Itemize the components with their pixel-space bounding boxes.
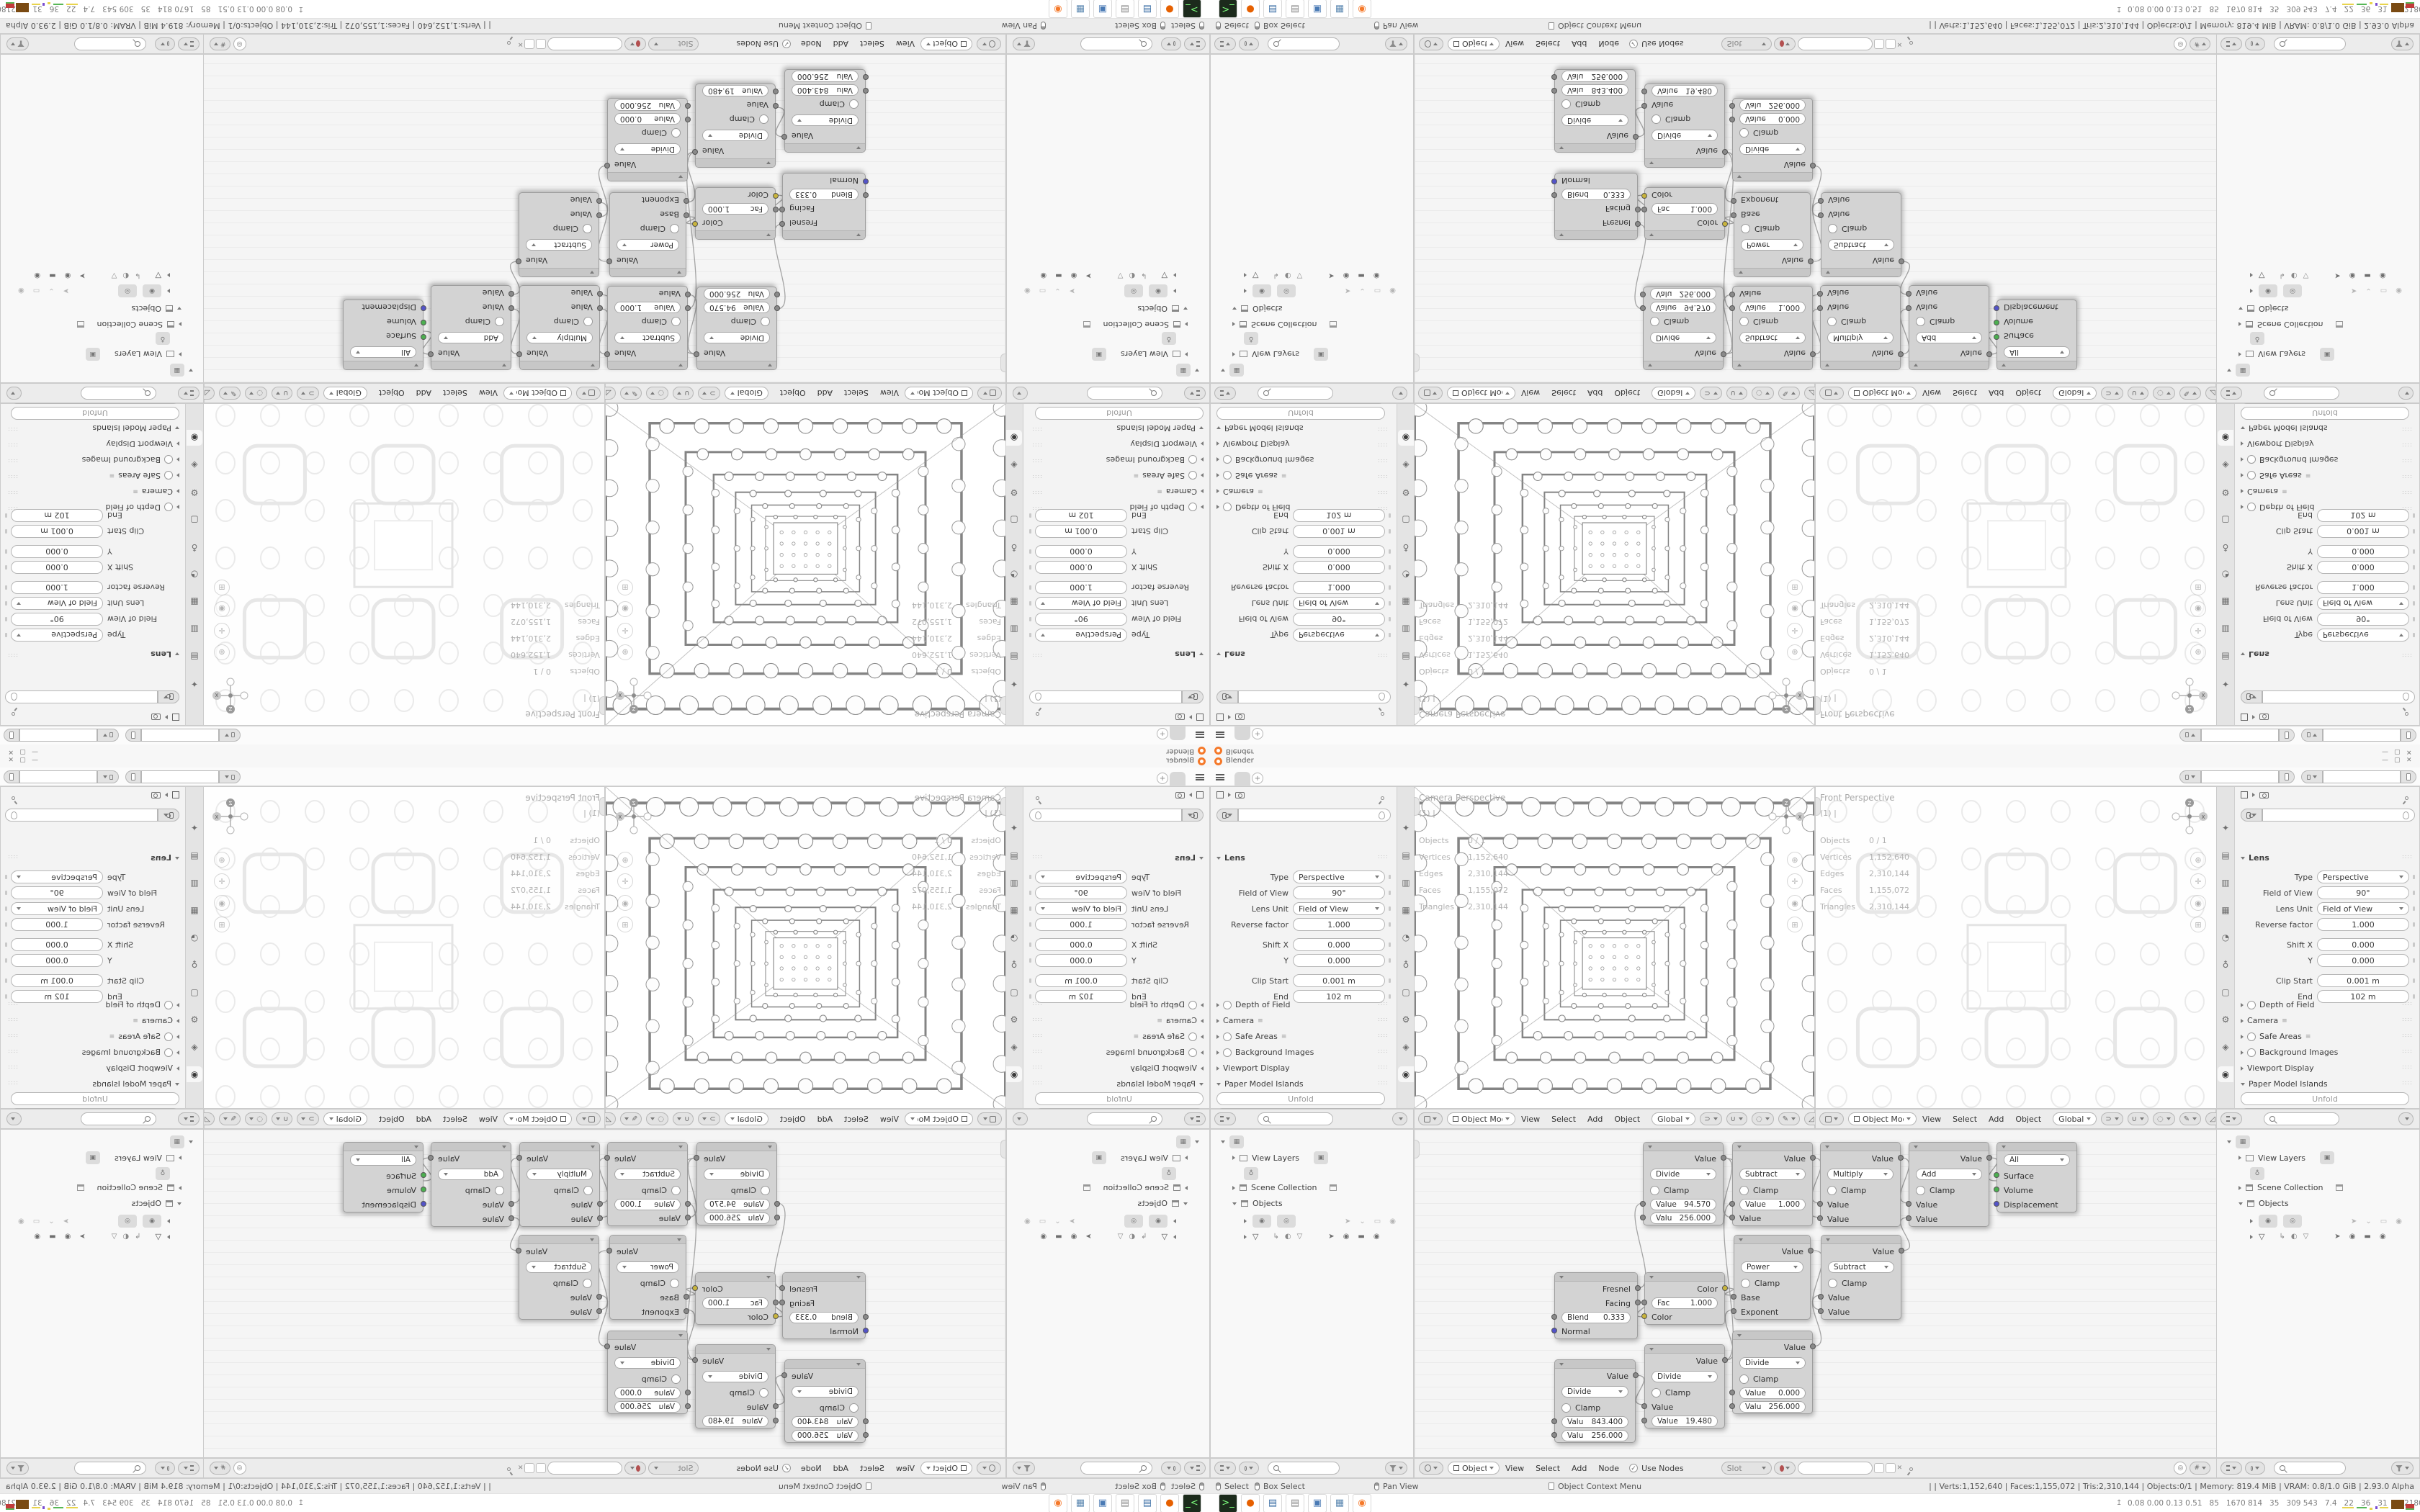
mode-dropdown[interactable]: Object Mode (1848, 1112, 1917, 1125)
node-header[interactable] (785, 1360, 865, 1369)
chevron-icon[interactable]: ⌄ (2365, 287, 2371, 295)
output-socket[interactable] (779, 1300, 785, 1305)
proportional-edit-group[interactable]: ◌ (1752, 1112, 1774, 1125)
panel-section-depth-of-field[interactable]: Depth of Field (2241, 503, 2315, 512)
lens-row-value-field-of-view[interactable]: 90° (11, 613, 103, 626)
chevron-icon[interactable]: ⌄ (1359, 287, 1365, 295)
outliner-row-objects[interactable]: Objects (1137, 304, 1188, 313)
app-image-viewer-icon[interactable]: ▦ (1330, 1494, 1349, 1512)
app-terminal-icon[interactable]: >_ (1183, 0, 1201, 19)
output-socket[interactable] (1633, 1372, 1639, 1378)
view-layer-selector[interactable] (4, 729, 119, 742)
menu-view[interactable]: View (1521, 389, 1540, 398)
sidebar-toggle-handle[interactable] (1816, 696, 1821, 715)
node-subtract[interactable]: ValueSubtractClampValueValue (1821, 192, 1901, 277)
panel-section-camera[interactable]: Camera≡ (133, 1016, 179, 1025)
scene-icon[interactable]: ◔ (187, 567, 202, 582)
menu-view[interactable]: View (1505, 40, 1524, 49)
chevron-icon[interactable]: ⌄ (1359, 1218, 1365, 1225)
input-socket[interactable] (1641, 1403, 1647, 1409)
panel-section-safe-areas[interactable]: Safe Areas≡ (1216, 471, 1286, 480)
app-window-switcher-icon[interactable]: ▣ (1308, 1494, 1327, 1512)
menu-select[interactable]: Select (1551, 1115, 1576, 1124)
cursor-icon[interactable]: ➤ (63, 1218, 69, 1225)
snap-target-group[interactable]: ⊃ (1700, 387, 1721, 400)
input-socket[interactable] (597, 1201, 603, 1207)
panel-section-safe-areas[interactable]: Safe Areas≡ (109, 1032, 179, 1041)
input-socket[interactable] (773, 193, 779, 199)
cursor-icon[interactable]: ➤ (1345, 1218, 1350, 1225)
outliner-display-mode-dropdown[interactable] (2220, 1112, 2242, 1125)
lens-row-value-field-of-view[interactable]: 90° (1293, 613, 1385, 626)
input-socket[interactable] (1641, 207, 1647, 213)
input-socket[interactable] (1551, 179, 1557, 184)
lens-panel-header[interactable]: Lens (1175, 649, 1204, 659)
input-socket[interactable] (1906, 291, 1912, 297)
node-operation-dropdown[interactable]: Divide (1739, 1357, 1806, 1369)
lens-row-value-shift-x[interactable]: 0.000 (1035, 938, 1127, 951)
value-field[interactable]: Blend0.333 (789, 189, 859, 201)
input-socket[interactable] (1551, 1418, 1557, 1424)
node-operation-dropdown[interactable]: Divide (614, 1357, 681, 1369)
camera-data-type-dropdown[interactable] (1216, 809, 1238, 822)
annotate-group[interactable]: ✎ (2179, 1112, 2201, 1125)
animate-dot-icon[interactable] (1029, 958, 1031, 963)
node-header[interactable] (1555, 143, 1635, 152)
outliner-search-field[interactable] (81, 1112, 156, 1125)
object-icon[interactable]: ▢ (1398, 984, 1414, 1000)
animate-dot-icon[interactable] (1029, 906, 1031, 911)
lens-row-value-y[interactable]: 0.000 (1293, 545, 1385, 558)
lens-row-value-end[interactable]: 102 m (1035, 509, 1127, 522)
mode-dropdown[interactable]: Object Mode (503, 387, 572, 400)
camera-data-name-field[interactable] (1238, 809, 1391, 822)
snap-magnet-group[interactable]: ∪ (2128, 387, 2148, 400)
node-operation-dropdown[interactable]: Power (1741, 1261, 1803, 1273)
camera-icon[interactable]: ◉ (1024, 1218, 1031, 1225)
new-workspace-button[interactable]: + (1252, 773, 1263, 784)
input-socket[interactable] (421, 1201, 426, 1207)
section-checkbox[interactable] (1223, 456, 1232, 464)
camera-data-icon[interactable]: ◉ (1006, 430, 1022, 446)
outliner-row-mesh[interactable]: ▽↳◐▽➤◉▬◉ (2250, 271, 2386, 280)
animate-dot-icon[interactable] (5, 585, 7, 590)
sidebar-toggle-handle[interactable] (1415, 696, 1420, 715)
cursor-icon[interactable]: ➤ (1328, 1233, 1334, 1241)
menu-add[interactable]: Add (817, 1115, 833, 1124)
value-field[interactable]: Value1.000 (1739, 302, 1806, 314)
animate-dot-icon[interactable] (1389, 958, 1391, 963)
gizmo-wrap[interactable]: ZX (1767, 797, 1806, 838)
unfold-button[interactable]: Unfold (1035, 407, 1204, 420)
node-divide[interactable]: ValueDivideClampValue0.000Valu256.000 (607, 1331, 688, 1414)
outliner-filter-dropdown[interactable] (1013, 387, 1028, 400)
input-socket[interactable] (1551, 1432, 1557, 1438)
scene-selector[interactable] (125, 770, 241, 783)
node-operation-dropdown[interactable]: Divide (614, 143, 681, 155)
output-socket[interactable] (1722, 1285, 1728, 1291)
input-socket[interactable] (684, 212, 689, 218)
input-socket[interactable] (685, 292, 691, 297)
unfold-button[interactable]: Unfold (2241, 407, 2409, 420)
input-socket[interactable] (774, 1215, 780, 1220)
node-header[interactable] (608, 172, 687, 181)
outliner-search-field[interactable] (2264, 387, 2339, 400)
lens-row-value-shift-x[interactable]: 0.000 (11, 561, 103, 574)
node-multiply[interactable]: ValueMultiplyClampValueValue (519, 1142, 600, 1227)
value-field[interactable]: Valu256.000 (1739, 100, 1806, 112)
world-icon[interactable]: ♁ (1398, 957, 1414, 973)
grid-ortho-icon[interactable]: ⊞ (214, 580, 230, 595)
outliner-row-mesh[interactable]: ▽↳◐▽➤◉▬◉ (2250, 1232, 2386, 1241)
view-layer-selector-field[interactable] (19, 729, 97, 742)
lens-panel-header[interactable]: Lens (151, 649, 179, 659)
output-socket[interactable] (1722, 1357, 1728, 1363)
panel-section-paper-model-islands[interactable]: Paper Model Islands (1116, 423, 1204, 433)
overlay-toggle-button[interactable]: ◎ (2174, 1462, 2187, 1475)
close-x-button[interactable]: ✕ (518, 1464, 524, 1472)
pin-id-button[interactable] (1381, 793, 1384, 802)
lens-row-value-field-of-view[interactable]: 90° (2317, 613, 2409, 626)
node-subtract[interactable]: ValueSubtractClampValue1.000Value (1732, 1142, 1813, 1226)
overlay-toggle-button[interactable]: ◎ (233, 37, 246, 50)
node-header[interactable] (1821, 1143, 1900, 1151)
node-header[interactable] (1555, 1273, 1637, 1282)
app-blender-icon[interactable]: ◉ (1353, 1494, 1371, 1512)
output-socket[interactable] (606, 1248, 612, 1254)
clamp-checkbox[interactable] (1652, 115, 1661, 125)
input-socket[interactable] (1551, 1328, 1557, 1333)
app-notepad-icon[interactable]: ▤ (1116, 1494, 1134, 1512)
unfold-button[interactable]: Unfold (11, 407, 179, 420)
unfold-button[interactable]: Unfold (1216, 407, 1385, 420)
output-icon[interactable]: ▥ (187, 875, 202, 891)
outliner-row-cameras[interactable]: ◉◎➤⌄▭◉ (1024, 1215, 1176, 1228)
output-icon[interactable]: ▥ (2218, 875, 2233, 891)
lens-row-value-lens-unit[interactable]: Field of View (1035, 902, 1127, 915)
outliner-display-mode-dropdown[interactable] (1184, 1112, 1206, 1125)
output-socket[interactable] (692, 221, 698, 227)
lens-row-value-field-of-view[interactable]: 90° (2317, 886, 2409, 899)
output-icon[interactable]: ▥ (187, 621, 202, 637)
pin-id-button[interactable] (2405, 793, 2408, 802)
pan-hand-icon[interactable]: ✛ (214, 873, 230, 889)
viewport-navigation-gizmo[interactable]: ZX (1767, 676, 1806, 715)
viewport-navigation-gizmo[interactable]: ZX (614, 676, 653, 715)
world-icon[interactable]: ♁ (1006, 957, 1022, 973)
node-snapping-group[interactable]: ◎# (210, 1462, 246, 1475)
clamp-checkbox[interactable] (671, 1374, 681, 1384)
snap-target-group[interactable]: ⊃ (2101, 387, 2123, 400)
mode-dropdown[interactable]: Object Mode (503, 1112, 572, 1125)
animate-dot-icon[interactable] (1389, 513, 1391, 518)
grid-ortho-icon[interactable]: ⊞ (1787, 580, 1803, 595)
camera-icon[interactable]: ◉ (34, 1233, 40, 1241)
outliner-row-objects[interactable]: Objects (2238, 1199, 2289, 1208)
mode-dropdown[interactable]: Object Mode (1848, 387, 1917, 400)
outliner-row-world[interactable]: ♁ (1162, 1167, 1176, 1180)
node-operation-dropdown[interactable]: Divide (792, 1386, 859, 1398)
output-socket[interactable] (428, 1155, 434, 1161)
snap-target-group[interactable]: ⊃ (698, 387, 720, 400)
workspace-tab[interactable] (1170, 726, 1186, 740)
use-nodes-toggle[interactable]: ✓Use Nodes (1629, 1464, 1684, 1473)
node-operation-dropdown[interactable]: Power (1741, 239, 1803, 251)
zoom-icon[interactable]: ⊕ (1787, 852, 1803, 868)
lens-row-value-end[interactable]: 102 m (11, 990, 103, 1003)
node-divide[interactable]: ValueDivideClampValue94.570Valu256.000 (1643, 1142, 1724, 1225)
input-socket[interactable] (863, 1314, 869, 1320)
cursor-icon[interactable]: ➤ (2334, 1233, 2340, 1241)
main-menu-button[interactable] (1216, 773, 1224, 783)
outliner-row-objects[interactable]: Objects (131, 304, 181, 313)
workspace-tab[interactable] (1234, 772, 1250, 786)
sidebar-toggle-handle[interactable] (1415, 797, 1420, 816)
clamp-checkbox[interactable] (1741, 225, 1750, 234)
scene-icon[interactable]: ◔ (2218, 930, 2233, 945)
app-terminal-icon[interactable]: >_ (1183, 1494, 1201, 1512)
render-icon[interactable]: ▤ (1006, 649, 1022, 665)
camera-icon[interactable]: ◉ (1373, 1233, 1380, 1241)
value-field[interactable]: Value19.480 (1652, 1416, 1718, 1427)
app-image-viewer-icon[interactable]: ▦ (1330, 0, 1349, 19)
output-socket[interactable] (781, 1372, 787, 1378)
pin-id-button[interactable] (12, 710, 15, 719)
gizmo-wrap[interactable]: ZX (2170, 674, 2209, 715)
camera-icon[interactable]: ◉ (1040, 271, 1047, 279)
chevron-icon[interactable]: ◉ (1071, 271, 1077, 279)
menu-view[interactable]: View (1521, 1115, 1540, 1124)
lens-row-value-type[interactable]: Perspective (1035, 629, 1127, 642)
view-layer-icon[interactable]: ▦ (187, 902, 202, 918)
panel-section-paper-model-islands[interactable]: Paper Model Islands (2241, 1079, 2328, 1089)
camera-icon[interactable]: ◉ (2396, 287, 2402, 295)
lens-row-value-clip-start[interactable]: 0.001 m (1293, 974, 1385, 987)
value-field[interactable]: Value1.000 (614, 302, 681, 314)
annotate-group[interactable]: ✎ (2179, 387, 2201, 400)
snap-magnet-group[interactable]: ∪ (272, 1112, 292, 1125)
outliner-row-scene[interactable]: ▦ (1221, 1135, 1244, 1148)
outliner-filter-type-dropdown[interactable] (1239, 37, 1259, 50)
input-socket[interactable] (1641, 1418, 1647, 1423)
node-operation-dropdown[interactable]: Add (1916, 332, 1982, 343)
window-minimize-button[interactable]: — (2382, 748, 2388, 755)
viewport-navigation-gizmo[interactable]: ZX (211, 797, 250, 836)
node-operation-dropdown[interactable]: Add (438, 1169, 504, 1180)
view-layer-selector-type[interactable] (97, 729, 119, 742)
menu-select[interactable]: Select (1953, 1115, 1977, 1124)
camera-icon[interactable]: ◉ (2380, 271, 2386, 279)
input-socket[interactable] (1551, 75, 1557, 81)
clamp-checkbox[interactable] (1561, 100, 1571, 109)
menu-object[interactable]: Object (1614, 1115, 1640, 1124)
render-icon[interactable]: ▤ (2218, 649, 2233, 665)
monitor-icon[interactable]: ▬ (2364, 271, 2370, 279)
input-socket[interactable] (1906, 1201, 1912, 1207)
zoom-icon[interactable]: ⊕ (2190, 644, 2206, 660)
animate-dot-icon[interactable] (2413, 633, 2415, 637)
chevron-icon[interactable]: ⌄ (1054, 1218, 1060, 1225)
camera-data-type-dropdown[interactable] (158, 690, 179, 703)
app-window-switcher-icon[interactable]: ▣ (1308, 0, 1327, 19)
pan-hand-icon[interactable]: ✛ (2190, 873, 2206, 889)
output-socket[interactable] (1898, 351, 1904, 357)
node-operation-dropdown[interactable]: All (2004, 1154, 2070, 1166)
lens-row-value-end[interactable]: 102 m (2317, 990, 2409, 1003)
outliner-row-world[interactable]: ♁ (2250, 1167, 2264, 1180)
shader-node-editor[interactable]: ValueDivideClampValue94.570Valu256.000Va… (1414, 1129, 2218, 1458)
pan-hand-icon[interactable]: ✛ (214, 623, 230, 639)
value-field[interactable]: Blend0.333 (1561, 1312, 1631, 1323)
node-operation-dropdown[interactable]: Power (617, 239, 679, 251)
modifier-icon[interactable]: ⚙ (1398, 1012, 1414, 1027)
input-socket[interactable] (773, 1313, 779, 1319)
cursor-icon[interactable]: ➤ (1070, 1218, 1075, 1225)
outliner-row-cameras[interactable]: ◉◎➤⌄▭◉ (18, 1215, 170, 1228)
output-socket[interactable] (516, 258, 521, 264)
outliner-row-cameras[interactable]: ◉◎➤⌄▭◉ (18, 284, 170, 297)
animate-dot-icon[interactable] (5, 513, 7, 518)
scene-icon[interactable]: ◔ (1398, 567, 1414, 582)
material-type-dropdown[interactable] (1774, 37, 1796, 50)
close-x-button[interactable]: ✕ (1897, 40, 1903, 48)
clamp-checkbox[interactable] (761, 318, 770, 327)
input-socket[interactable] (863, 179, 869, 184)
panel-section-camera[interactable]: Camera≡ (1216, 1016, 1263, 1025)
chevron-icon[interactable]: ⌄ (2365, 1218, 2371, 1225)
node-divide[interactable]: ValueDivideClampValue94.570Valu256.000 (1643, 287, 1724, 370)
outliner-row-objects[interactable]: Objects (131, 1199, 181, 1208)
editor-type-button[interactable] (1418, 1112, 1443, 1125)
menu-select[interactable]: Select (1551, 389, 1576, 398)
input-socket[interactable] (863, 1432, 869, 1438)
window-maximize-button[interactable]: ▢ (19, 748, 26, 755)
camera-data-name-field[interactable] (1029, 809, 1182, 822)
animate-dot-icon[interactable] (1389, 978, 1391, 983)
node-all[interactable]: AllSurfaceVolumeDisplacement (1996, 1142, 2077, 1212)
output-socket[interactable] (694, 351, 699, 357)
output-socket[interactable] (1808, 258, 1814, 264)
camera-data-type-dropdown[interactable] (1216, 690, 1238, 703)
section-checkbox[interactable] (164, 472, 173, 480)
shader-type-dropdown[interactable]: Object (1448, 1462, 1500, 1475)
unlink-button[interactable] (524, 39, 534, 49)
pin-node-tree-button[interactable] (507, 40, 511, 49)
world-icon[interactable]: ♁ (2218, 957, 2233, 973)
viewport-3d-camera[interactable]: Camera Perspective(1) |Objects0 / 1Verti… (605, 786, 1006, 1109)
lens-row-value-reverse-factor[interactable]: 1.000 (1293, 581, 1385, 594)
outliner-row-scene[interactable]: ▦ (1176, 1135, 1199, 1148)
material-type-dropdown[interactable] (624, 37, 646, 50)
animate-dot-icon[interactable] (5, 565, 7, 570)
input-socket[interactable] (1731, 198, 1736, 204)
grid-ortho-icon[interactable]: ⊞ (214, 917, 230, 932)
zoom-icon[interactable]: ⊕ (214, 852, 230, 868)
menu-select[interactable]: Select (844, 1115, 869, 1124)
clamp-checkbox[interactable] (1828, 225, 1837, 234)
app-archiver-icon[interactable]: ▤ (1263, 0, 1282, 19)
lens-row-value-y[interactable]: 0.000 (11, 954, 103, 967)
value-field[interactable]: Valu256.000 (792, 71, 859, 83)
panel-section-paper-model-islands[interactable]: Paper Model Islands (1216, 1079, 1304, 1089)
node-divide[interactable]: ValueDivideClampValueValue19.480 (695, 84, 776, 168)
view-layer-selector-type[interactable] (2301, 770, 2323, 783)
lens-row-value-end[interactable]: 102 m (1293, 990, 1385, 1003)
panel-section-safe-areas[interactable]: Safe Areas≡ (109, 471, 179, 480)
input-socket[interactable] (1731, 1308, 1736, 1314)
outliner-filter-dropdown[interactable] (6, 1462, 29, 1475)
scene-selector[interactable] (125, 729, 241, 742)
output-socket[interactable] (1810, 1155, 1816, 1161)
clamp-checkbox[interactable] (1827, 318, 1837, 327)
node-subtract[interactable]: ValueSubtractClampValue1.000Value (607, 1142, 688, 1226)
node-add[interactable]: ValueAddClampValueValue (431, 1142, 511, 1227)
menu-add[interactable]: Add (1572, 1464, 1587, 1473)
panel-section-depth-of-field[interactable]: Depth of Field (1216, 503, 1291, 512)
input-socket[interactable] (1729, 292, 1735, 297)
panel-section-viewport-display[interactable]: Viewport Display (106, 1063, 179, 1073)
scene-icon[interactable]: ◔ (1398, 930, 1414, 945)
lens-row-value-type[interactable]: Perspective (11, 629, 103, 642)
node-header[interactable] (610, 268, 686, 276)
animate-dot-icon[interactable] (1389, 942, 1391, 947)
app-notepad-icon[interactable]: ▤ (1286, 1494, 1304, 1512)
cursor-icon[interactable]: ➤ (79, 271, 85, 279)
node-fresnel[interactable]: FresnelFacingBlend0.333Normal (1554, 173, 1638, 240)
output-socket[interactable] (1635, 1300, 1641, 1305)
input-socket[interactable] (685, 1201, 691, 1207)
monitor-icon[interactable]: ▭ (2380, 287, 2387, 295)
clamp-checkbox[interactable] (1827, 1186, 1837, 1195)
zoom-icon[interactable]: ⊕ (2190, 852, 2206, 868)
scene-selector-type[interactable] (219, 770, 241, 783)
animate-dot-icon[interactable] (5, 529, 7, 534)
outliner-filter-type-dropdown[interactable] (155, 1462, 175, 1475)
orientation-dropdown[interactable]: Global (725, 1112, 768, 1125)
input-socket[interactable] (1729, 1215, 1735, 1220)
lens-row-value-clip-start[interactable]: 0.001 m (11, 525, 103, 538)
node-operation-dropdown[interactable]: All (2004, 346, 2070, 358)
node-header[interactable] (1733, 172, 1812, 181)
value-field[interactable]: Blend0.333 (789, 1312, 859, 1323)
zoom-icon[interactable]: ⊕ (617, 644, 633, 660)
clamp-checkbox[interactable] (495, 318, 504, 327)
outliner-filter-dropdown[interactable] (1013, 1462, 1035, 1475)
unlink-button[interactable] (1886, 39, 1896, 49)
lens-row-value-reverse-factor[interactable]: 1.000 (11, 581, 103, 594)
chevron-icon[interactable]: ◉ (1343, 271, 1350, 279)
gizmo-wrap[interactable]: ZX (2170, 797, 2209, 838)
app-archiver-icon[interactable]: ▤ (1263, 1494, 1282, 1512)
menu-object[interactable]: Object (379, 1115, 405, 1124)
physics-icon[interactable]: ◈ (1006, 457, 1022, 473)
node-operation-dropdown[interactable]: Power (617, 1261, 679, 1273)
outliner-row-scene-collection[interactable]: Scene Collection (2238, 1183, 2343, 1192)
proportional-edit-group[interactable]: ◌ (2153, 1112, 2175, 1125)
clamp-checkbox[interactable] (1561, 1403, 1571, 1413)
value-field[interactable]: Value0.000 (614, 1387, 681, 1399)
output-icon[interactable]: ▥ (2218, 621, 2233, 637)
outliner-filter-type-dropdown[interactable] (1161, 37, 1181, 50)
node-power[interactable]: ValuePowerClampBaseExponent (1734, 1235, 1811, 1320)
output-socket[interactable] (1722, 221, 1728, 227)
input-socket[interactable] (1641, 103, 1647, 109)
animate-dot-icon[interactable] (2413, 565, 2415, 570)
outliner-row-cameras[interactable]: ◉◎➤⌄▭◉ (1244, 284, 1396, 297)
animate-dot-icon[interactable] (1029, 565, 1031, 570)
view-layer-selector[interactable] (2301, 770, 2416, 783)
close-x-button[interactable]: ✕ (1897, 1464, 1903, 1472)
